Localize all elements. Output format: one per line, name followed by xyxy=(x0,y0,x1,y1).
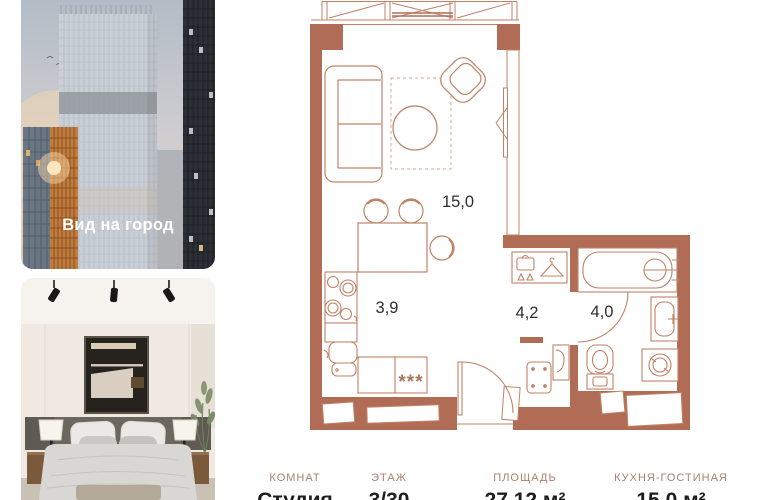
bathroom-sink xyxy=(651,297,678,341)
area-label: ПЛОЩАДЬ xyxy=(485,472,566,484)
room-area-hallway: 4,2 xyxy=(516,304,539,322)
room-area-bathroom: 4,0 xyxy=(591,303,614,321)
washing-machine xyxy=(642,349,678,381)
window-band xyxy=(311,2,519,25)
hall-console xyxy=(527,345,569,393)
room-area-kitchen: 3,9 xyxy=(376,299,399,317)
armchair xyxy=(436,53,490,107)
listing-screen: Вид на город xyxy=(0,0,770,500)
rooms-value: Студия xyxy=(257,490,333,500)
floor-plan: *** xyxy=(296,0,700,470)
photo-caption: Вид на город xyxy=(62,216,174,234)
living-window xyxy=(496,50,519,235)
appliance-marker: *** xyxy=(398,372,423,393)
kitchen-living-value: 15,0 м² xyxy=(614,490,728,500)
wall-art xyxy=(85,337,148,413)
dining-set xyxy=(358,199,454,272)
kitchen-living-label: КУХНЯ-ГОСТИНАЯ xyxy=(614,472,728,484)
floor-value: 3/30 xyxy=(369,490,410,500)
photo-bedroom[interactable] xyxy=(21,278,215,500)
bathtub xyxy=(578,248,680,292)
bench xyxy=(76,485,161,500)
info-col-floor: ЭТАЖ 3/30 xyxy=(369,472,410,500)
orange-building xyxy=(23,127,78,269)
wardrobe xyxy=(512,252,567,283)
info-col-area: ПЛОЩАДЬ 27,12 м² xyxy=(485,472,566,500)
coffee-table xyxy=(393,106,437,150)
floor-label: ЭТАЖ xyxy=(369,472,410,484)
sofa xyxy=(325,66,382,182)
rooms-label: КОМНАТ xyxy=(257,472,333,484)
bedroom-illustration xyxy=(21,278,215,500)
info-col-kitchen-living: КУХНЯ-ГОСТИНАЯ 15,0 м² xyxy=(614,472,728,500)
city-view-illustration: Вид на город xyxy=(21,0,215,269)
dark-tower xyxy=(183,0,215,269)
toilet xyxy=(587,345,613,389)
photo-city-view[interactable]: Вид на город xyxy=(21,0,215,269)
room-area-living: 15,0 xyxy=(442,193,474,211)
info-col-rooms: КОМНАТ Студия xyxy=(257,472,333,500)
area-value: 27,12 м² xyxy=(485,490,566,500)
